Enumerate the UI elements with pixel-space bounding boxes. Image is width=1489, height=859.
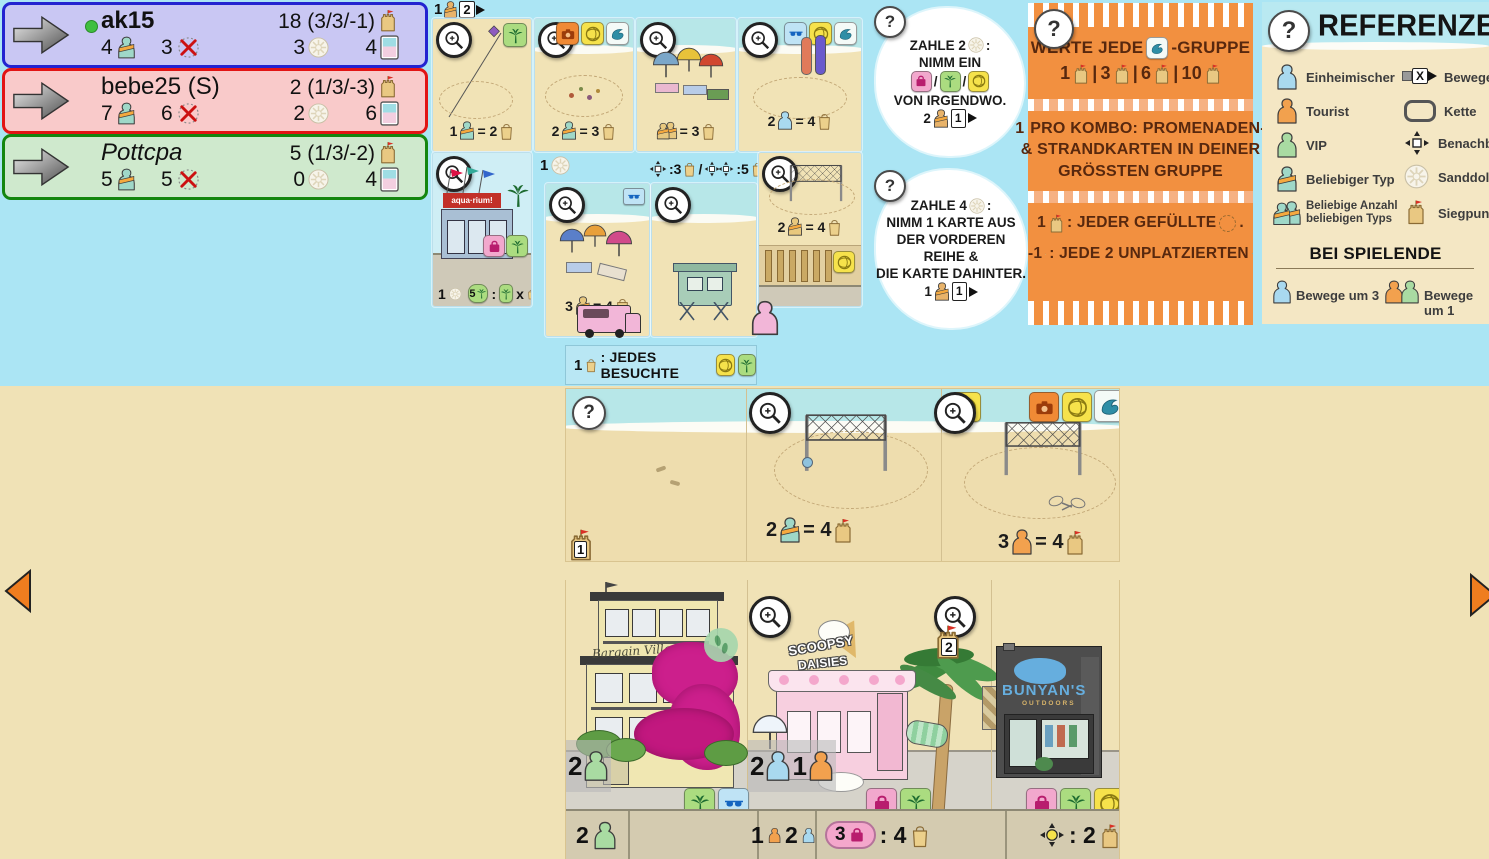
legend-label: Bewege (1444, 70, 1489, 85)
sunglasses-icon (623, 188, 645, 205)
bag-icon (827, 218, 842, 236)
slash: / (698, 161, 702, 177)
legend-label: Benachbart (1438, 136, 1489, 151)
figure-icon (561, 121, 577, 140)
footprint-art (656, 465, 667, 472)
stripe-divider-art (1028, 191, 1253, 203)
scoring-line-4: 1 : JEDER GEFÜLLTE . (1028, 213, 1253, 233)
villas-figure-overlay: 2 (566, 740, 611, 792)
volleyball-net-art (994, 417, 1092, 477)
shop-icon (911, 71, 932, 92)
combo-colon: : (491, 286, 496, 302)
umbrella-art (604, 230, 634, 260)
stat-value: : 2 (1069, 822, 1096, 849)
card-header-sanddollar: 1 (540, 156, 570, 175)
unplaced-crossed-icon (177, 102, 200, 125)
victory-point-icon (1100, 822, 1120, 849)
bonus-text: : JEDES BESUCHTE (601, 349, 714, 381)
benachbart-icon (1404, 130, 1430, 156)
player-name[interactable]: Pottcpa (101, 139, 182, 167)
tourist-figure-icon (808, 750, 834, 782)
legend-label: Beliebige Anzahl beliebigen Typs (1306, 200, 1398, 226)
bag-icon (585, 356, 597, 374)
towel-art (566, 262, 592, 273)
sanddollar-icon (308, 37, 329, 58)
play-area-circle (769, 179, 855, 215)
unplaced-crossed-icon (177, 36, 200, 59)
victory-point-icon (1073, 63, 1089, 84)
play-area-circle (439, 81, 513, 119)
scoring-line-2: 1 | 3 | 6 | 10 (1028, 63, 1253, 84)
tip-text: DER VORDEREN REIHE & (876, 231, 1026, 265)
victory-point-icon (379, 8, 397, 32)
palm-icon (738, 354, 756, 376)
wave-icon (1094, 390, 1120, 422)
zoom-icon[interactable] (749, 392, 791, 434)
help-icon[interactable]: ? (874, 6, 906, 38)
tip-chip-row: / / (911, 71, 990, 92)
adjacent-cost-1: :3 (669, 161, 681, 177)
tourist-icon (1276, 98, 1298, 124)
caption-count: 2 (778, 219, 786, 235)
figure-icon (1011, 529, 1033, 555)
board-area: ? 1 2 = 4 (0, 386, 1489, 859)
combo-x: x (516, 286, 524, 302)
figure-icon (787, 217, 803, 236)
sanddollar-icon (968, 37, 984, 53)
ball-icon (716, 354, 734, 376)
unplaced-count: 6 (161, 102, 173, 126)
tip-text: VON IRGENDWO. (894, 92, 1007, 109)
market-card-kite[interactable]: 1 = 2 (432, 18, 532, 152)
bunyans-building[interactable]: BUNYAN'S OUTDOORS (996, 646, 1116, 792)
ball-icon (581, 22, 604, 45)
market-card-aquarium[interactable]: aqua·rium! 1 5 : x (432, 152, 532, 307)
legend-label: Einheimischer (1306, 70, 1395, 85)
help-icon[interactable]: ? (572, 396, 606, 430)
player-score: 18 (3/3/-1) (278, 10, 375, 34)
shop-combo-badge: 3 (825, 821, 876, 849)
figure-icon (777, 111, 793, 130)
zoom-icon[interactable] (549, 187, 585, 223)
turn-moves-count: 2 (459, 1, 474, 18)
unplaced-crossed-icon (177, 168, 200, 191)
wave-icon (1146, 37, 1168, 59)
market-card-volleyball[interactable]: 2 = 4 (758, 152, 862, 307)
caption-eq: = 3 (680, 123, 700, 139)
shells-art (569, 87, 603, 105)
towel-art (655, 83, 679, 93)
hand-card-count: 6 (365, 102, 377, 126)
card-caption: 1 = 2 (433, 121, 531, 140)
combo-value: : 4 (880, 822, 907, 849)
caption-count: 3 (998, 531, 1009, 554)
scoring-line-5: -1 : JEDE 2 UNPLATZIERTEN (1028, 243, 1253, 264)
help-icon[interactable]: ? (1268, 10, 1310, 52)
move-arrow-icon (476, 5, 485, 15)
unplaced-count: 3 (161, 36, 173, 60)
sandcastle-marker-2[interactable]: 2 (934, 622, 964, 662)
hand-card-icon (380, 101, 399, 126)
shop-icon (848, 826, 866, 844)
help-icon[interactable]: ? (1034, 9, 1074, 49)
shop-icon (483, 235, 505, 257)
player-panel-bebe25[interactable]: bebe25 (S) 2 (1/3/-3) 7 6 2 6 (2, 68, 428, 134)
figure-icon (117, 102, 136, 125)
tip-text: NIMM EIN (919, 54, 981, 71)
caption-eq: = 4 (805, 219, 825, 235)
palm-icon (940, 71, 961, 92)
figure-icon (459, 121, 475, 140)
reference-title: REFERENZEN (1318, 9, 1489, 44)
kette-icon (1404, 100, 1436, 122)
towel-art (597, 263, 627, 281)
caption-eq: = 4 (803, 519, 831, 542)
victory-point-icon (1154, 63, 1170, 84)
flags-art (439, 165, 499, 195)
any-figures-icon (656, 121, 678, 140)
caption-eq: = 4 (1035, 531, 1063, 554)
footprint-art (670, 480, 681, 486)
palm-art (505, 177, 531, 213)
top-bar: ak15 18 (3/3/-1) 4 3 3 4 bebe25 (S) 2 (1… (0, 0, 1489, 387)
legend-label: Beliebiger Typ (1306, 172, 1395, 187)
caption-eq: = 4 (795, 113, 815, 129)
any-number-icon (1272, 200, 1302, 226)
ball-icon (833, 251, 855, 273)
help-icon[interactable]: ? (874, 170, 906, 202)
move-arrow-icon (969, 287, 978, 297)
game-table: ak15 18 (3/3/-1) 4 3 3 4 bebe25 (S) 2 (1… (0, 0, 1489, 859)
scroll-left-arrow[interactable] (3, 568, 33, 614)
vip-figure-icon (593, 821, 617, 850)
surfboard-art (801, 37, 812, 75)
figure-icon (933, 109, 949, 128)
caption-count: 2 (766, 519, 777, 542)
legend-label: Tourist (1306, 104, 1349, 119)
card-stat-bar: 2 1 2 3 : 4 (566, 809, 1119, 859)
beach-caption-b: 2 = 4 (766, 517, 853, 543)
scoring-line-3c: GRÖSSTEN GRUPPE (1028, 163, 1253, 181)
caption-eq: = 2 (477, 123, 497, 139)
badminton-rackets-art (1046, 493, 1090, 513)
caption-count: 1 (450, 123, 458, 139)
benachbart-icon (718, 161, 734, 177)
victory-point-icon (1045, 244, 1046, 264)
victory-point-icon (1205, 63, 1221, 84)
card-divider (746, 389, 747, 561)
turn-arrow-icon (12, 145, 70, 189)
caption-count: 3 (565, 298, 573, 314)
zoom-icon[interactable] (934, 392, 976, 434)
scoopsy-combo-cell: 3 : 4 (811, 811, 1007, 859)
bag-icon (527, 286, 532, 302)
victory-point-icon (379, 74, 397, 98)
sanddollar-icon (1404, 164, 1429, 189)
tip-text: ZAHLE 4 (911, 197, 967, 214)
move-arrow-icon (968, 113, 977, 123)
card-caption: 2 = 3 (535, 121, 633, 140)
card-header-adjacent: :3 / :5 (649, 160, 764, 178)
caption-eq: = 3 (579, 123, 599, 139)
bunyans-sign: BUNYAN'S (1002, 682, 1086, 699)
caption-count: 2 (552, 123, 560, 139)
vip-icon (1400, 280, 1420, 304)
stripe-border-art (1028, 301, 1253, 325)
sanddollar-icon (308, 103, 329, 124)
legend-label: Sanddollar (1438, 170, 1489, 185)
scoring-line-3b: & STRANDKARTEN IN DEINER (1028, 141, 1253, 159)
palm-icon (499, 284, 513, 303)
figure-count: 1 (751, 822, 764, 849)
vip-icon (1276, 132, 1298, 158)
card-footer: 1 5 : x (433, 281, 532, 306)
wave-icon (606, 22, 629, 45)
figure-icon (117, 36, 136, 59)
bag-icon (910, 823, 930, 848)
card-caption: = 3 (637, 121, 735, 140)
endgame-rule-1: Bewege um 3 (1296, 288, 1379, 303)
market-card-umbrellas[interactable]: = 3 (636, 18, 736, 152)
figure-icon (443, 1, 458, 18)
endgame-title: BEI SPIELENDE (1262, 244, 1489, 264)
figure-icon (779, 517, 801, 543)
figure-count: 5 (101, 168, 113, 192)
figure-count: 2 (568, 751, 582, 782)
pink-figure-sprite[interactable] (750, 296, 780, 340)
figure-icon (117, 168, 136, 191)
zoom-icon[interactable] (742, 22, 778, 58)
active-turn-arrow-icon (12, 13, 70, 57)
hut-legs-art (672, 302, 736, 322)
sanddollar-icon (308, 169, 329, 190)
beach-row: ? 1 2 = 4 (565, 388, 1120, 562)
adjacent-cost-2: :5 (736, 161, 748, 177)
player-name[interactable]: ak15 (101, 7, 154, 35)
boardwalk-row: Bargain Villas 2 (565, 580, 1120, 859)
towel-art (707, 89, 729, 100)
any-type-icon (1276, 166, 1298, 192)
figure-count: 2 (576, 822, 589, 849)
sanddollar-icon (969, 198, 985, 214)
card-caption: 2 = 4 (739, 111, 861, 130)
stripe-divider-art (1028, 99, 1253, 111)
bunyans-sub-sign: OUTDOORS (1022, 700, 1076, 707)
benachbart-ball-icon (1039, 822, 1065, 848)
turn-figure-count: 1 (434, 1, 442, 18)
turn-arrow-icon (12, 79, 70, 123)
player-score: 2 (1/3/-3) (290, 76, 375, 100)
umbrella-art (697, 53, 725, 81)
victory-point-icon (1049, 213, 1064, 233)
surfboard-art (815, 35, 826, 75)
hand-card-count: 4 (365, 168, 377, 192)
victory-point-icon (1065, 529, 1085, 555)
empty-stat-cell (618, 811, 759, 859)
scoopsy-figure-overlay: 2 1 (748, 740, 836, 792)
figure-count: 4 (101, 36, 113, 60)
marker-number: 1 (574, 541, 587, 558)
legend-label: VIP (1306, 138, 1327, 153)
hand-card-count: 4 (365, 36, 377, 60)
scoopsy-figures-cell: 1 2 (747, 811, 817, 859)
figure-count: 2 (750, 751, 764, 782)
camera-icon (556, 22, 579, 45)
sanddollar-count: 2 (293, 102, 305, 126)
benachbart-icon (649, 160, 667, 178)
scoring-line-3a: 1 PRO KOMBO: PROMENADEN- (1028, 119, 1253, 139)
palm-icon (506, 235, 528, 257)
scroll-right-arrow[interactable] (1468, 572, 1489, 618)
market-card-lifeguard-hut[interactable] (651, 183, 757, 337)
figure-icon (1252, 243, 1253, 264)
tip-text: ZAHLE 2 (910, 37, 966, 54)
sanddollar-cost: 1 (540, 157, 548, 174)
ice-cream-truck-sprite[interactable] (575, 303, 643, 343)
divider (1276, 268, 1474, 269)
victory-point-icon (833, 517, 853, 543)
sanddollar-count: 0 (293, 168, 305, 192)
sandcastle-marker-1[interactable]: 1 (568, 527, 598, 561)
tip-text: DIE KARTE DAHINTER. (876, 265, 1026, 282)
figure-icon (934, 282, 950, 301)
endgame-rule-2: Bewege um 1 (1424, 288, 1489, 318)
ball-icon (968, 71, 989, 92)
hand-card-icon (380, 35, 399, 60)
einheimischer-icon (1272, 280, 1292, 304)
marker-number: 2 (941, 638, 957, 656)
footprints-badge (704, 628, 738, 662)
player-name[interactable]: bebe25 (S) (101, 73, 220, 101)
beach-caption-c: 3 = 4 (998, 529, 1085, 555)
siegpunkt-icon (1406, 198, 1426, 225)
lifeguard-hut-art (678, 270, 732, 306)
online-status-dot (85, 20, 98, 33)
market-card-surfboards[interactable]: 2 = 4 (738, 18, 862, 152)
bonus-count: 1 (574, 357, 582, 374)
tip-cost-row: 1 1 (924, 282, 977, 301)
player-panel-pottcpa[interactable]: Pottcpa 5 (1/3/-2) 5 5 0 4 (2, 134, 428, 200)
einheimischer-icon (1276, 64, 1298, 90)
tip-cost-row: 2 1 (923, 109, 976, 128)
player-score: 5 (1/3/-2) (290, 142, 375, 166)
bonus-label: 1 : JEDES BESUCHTE (565, 345, 757, 385)
sanddollar-icon (449, 285, 462, 303)
turn-indicator: 1 2 (434, 1, 485, 18)
legend-label: Kette (1444, 104, 1477, 119)
bag-icon (499, 122, 514, 140)
reference-panel: ? REFERENZEN Einheimischer Tourist VIP B… (1262, 2, 1489, 324)
player-panel-ak15[interactable]: ak15 18 (3/3/-1) 4 3 3 4 (2, 2, 428, 68)
bewege-icon: X (1402, 68, 1437, 84)
caption-count: 2 (768, 113, 776, 129)
bag-icon (817, 112, 832, 130)
einheimischer-figure-icon (765, 750, 791, 782)
sanddollar-count: 3 (293, 36, 305, 60)
victory-point-icon (379, 140, 397, 164)
victory-point-icon (1114, 63, 1130, 84)
bag-icon (701, 122, 716, 140)
figure-count: 2 (785, 822, 798, 849)
wave-icon (834, 22, 857, 45)
bunyans-stat-cell: : 2 (991, 811, 1120, 859)
sanddollar-cost: 1 (438, 286, 446, 302)
sanddollar-icon (551, 156, 570, 175)
move-count: 1 (952, 282, 967, 301)
aquarium-sign: aqua·rium! (443, 193, 501, 208)
unplaced-count: 5 (161, 168, 173, 192)
palm-combo-badge: 5 (468, 284, 488, 303)
vip-figure-icon (583, 750, 609, 782)
towel-art (683, 85, 707, 95)
market-card-shells[interactable]: 2 = 3 (534, 18, 634, 152)
card-caption: 2 = 4 (759, 217, 861, 236)
zoom-icon[interactable] (655, 187, 691, 223)
figure-count: 7 (101, 102, 113, 126)
scoring-panel: WERTE JEDE -GRUPPE 1 | 3 | 6 | 10 1 PRO … (1028, 3, 1253, 325)
move-count: 1 (951, 109, 966, 128)
bag-icon (683, 161, 696, 177)
hand-card-icon (380, 167, 399, 192)
ball-art (802, 457, 813, 468)
legend-label: Siegpunkt (1438, 206, 1489, 221)
tourist-figure-icon (768, 821, 781, 850)
figure-count: 1 (792, 751, 806, 782)
bag-icon (601, 122, 616, 140)
tip-text: NIMM 1 KARTE AUS (886, 214, 1015, 231)
circle-area-icon (1219, 215, 1236, 232)
